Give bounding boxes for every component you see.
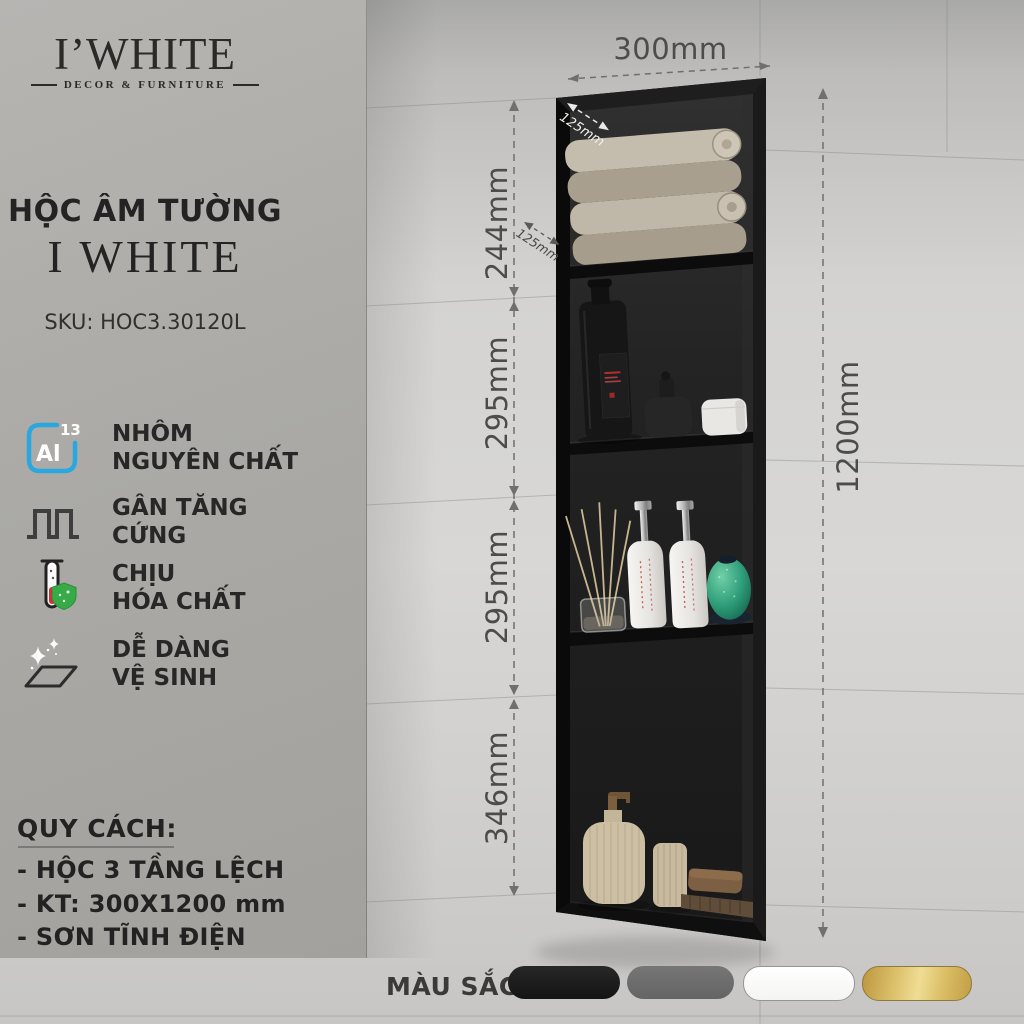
tagline-dash-left — [31, 84, 57, 86]
depth-shelf-label: 125mm — [514, 225, 563, 264]
shelf-dividers — [570, 251, 753, 922]
feature-line: NGUYÊN CHẤT — [112, 448, 298, 476]
dim-width-label: 300mm — [598, 32, 743, 66]
feature-chemical: CHỊU HÓA CHẤT — [22, 558, 246, 616]
pump-bottle-1 — [624, 500, 667, 629]
al-symbol: Al — [36, 442, 61, 467]
width-dim-line — [568, 66, 770, 79]
niche-shadow — [535, 936, 775, 968]
feature-line: HÓA CHẤT — [112, 588, 246, 616]
depth-dim-top: 125mm — [555, 100, 613, 150]
tagline-dash-right — [233, 84, 259, 86]
color-options-label: MÀU SẮC — [386, 972, 518, 1001]
brand-name: I’WHITE — [0, 30, 290, 78]
dim-segment-3-label: 295mm — [482, 517, 512, 657]
product-poster: 125mm 125mm I’WHITE DECOR & FURNITURE HỘ… — [0, 0, 1024, 1024]
specs-block: QUY CÁCH: - HỘC 3 TẦNG LỆCH - KT: 300X12… — [17, 814, 286, 955]
dim-segment-4-label: 346mm — [482, 718, 512, 858]
specs-underline — [18, 846, 174, 848]
folded-towels — [564, 127, 749, 266]
feature-text: CHỊU HÓA CHẤT — [112, 558, 246, 616]
soap-dispenser — [583, 792, 645, 904]
feature-line: CỨNG — [112, 522, 248, 550]
color-swatch-black — [508, 966, 620, 999]
color-swatch-gray — [627, 966, 734, 999]
feature-line: CHỊU — [112, 560, 246, 588]
white-jar — [701, 398, 748, 436]
product-sku: SKU: HOC3.30120L — [0, 310, 290, 334]
shelf4-items — [578, 792, 753, 918]
reed-diffuser — [565, 501, 636, 633]
dim-segment-1-label: 244mm — [482, 153, 512, 293]
wooden-soap-dish — [681, 868, 753, 918]
specs-heading: QUY CÁCH: — [17, 814, 286, 843]
dark-candle-jar — [642, 370, 692, 438]
product-title: HỘC ÂM TƯỜNG — [0, 194, 290, 229]
feature-line: NHÔM — [112, 420, 298, 448]
depth-top-label: 125mm — [557, 110, 607, 150]
feature-text: NHÔM NGUYÊN CHẤT — [112, 418, 298, 476]
pump-bottle-2 — [666, 500, 709, 629]
color-swatch-gold — [862, 966, 972, 1001]
dimension-lines: 125mm 125mm — [509, 62, 828, 938]
product-subtitle: I WHITE — [0, 230, 290, 283]
feature-aluminum: Al 13 NHÔM NGUYÊN CHẤT — [22, 418, 298, 476]
brand-tagline: DECOR & FURNITURE — [0, 79, 290, 91]
brand-tagline-text: DECOR & FURNITURE — [64, 79, 226, 91]
wall-niche-shelf — [556, 78, 766, 941]
depth-dim-shelf: 125mm — [514, 219, 567, 265]
feature-ribs: GÂN TĂNG CỨNG — [22, 492, 248, 550]
spec-item-tiers: - HỘC 3 TẦNG LỆCH — [17, 854, 286, 888]
spec-item-coating: - SƠN TĨNH ĐIỆN — [17, 921, 286, 955]
teal-diffuser — [705, 555, 753, 626]
dim-height-label: 1200mm — [833, 357, 863, 497]
dim-segment-2-label: 295mm — [482, 323, 512, 463]
chemical-resistant-icon — [22, 558, 84, 616]
al-number: 13 — [60, 421, 81, 439]
spec-item-size: - KT: 300X1200 mm — [17, 888, 286, 922]
feature-text: DỄ DÀNG VỆ SINH — [112, 634, 230, 692]
aluminum-al13-icon: Al 13 — [22, 418, 84, 476]
color-swatch-white — [743, 966, 855, 1001]
product-title-block: HỘC ÂM TƯỜNG I WHITE SKU: HOC3.30120L — [0, 194, 290, 334]
feature-line: GÂN TĂNG — [112, 494, 248, 522]
brand-logo: I’WHITE DECOR & FURNITURE — [0, 30, 290, 91]
ribbed-cup — [653, 843, 687, 907]
shelf3-items — [565, 495, 753, 634]
stiffening-ribs-icon — [22, 492, 84, 550]
wall-soft-shadow — [367, 0, 437, 958]
black-bottle — [577, 278, 632, 440]
feature-clean: DỄ DÀNG VỆ SINH — [22, 634, 230, 692]
shelf2-items — [570, 272, 748, 446]
feature-line: VỆ SINH — [112, 664, 230, 692]
feature-text: GÂN TĂNG CỨNG — [112, 492, 248, 550]
feature-line: DỄ DÀNG — [112, 636, 230, 664]
easy-clean-icon — [22, 634, 84, 692]
